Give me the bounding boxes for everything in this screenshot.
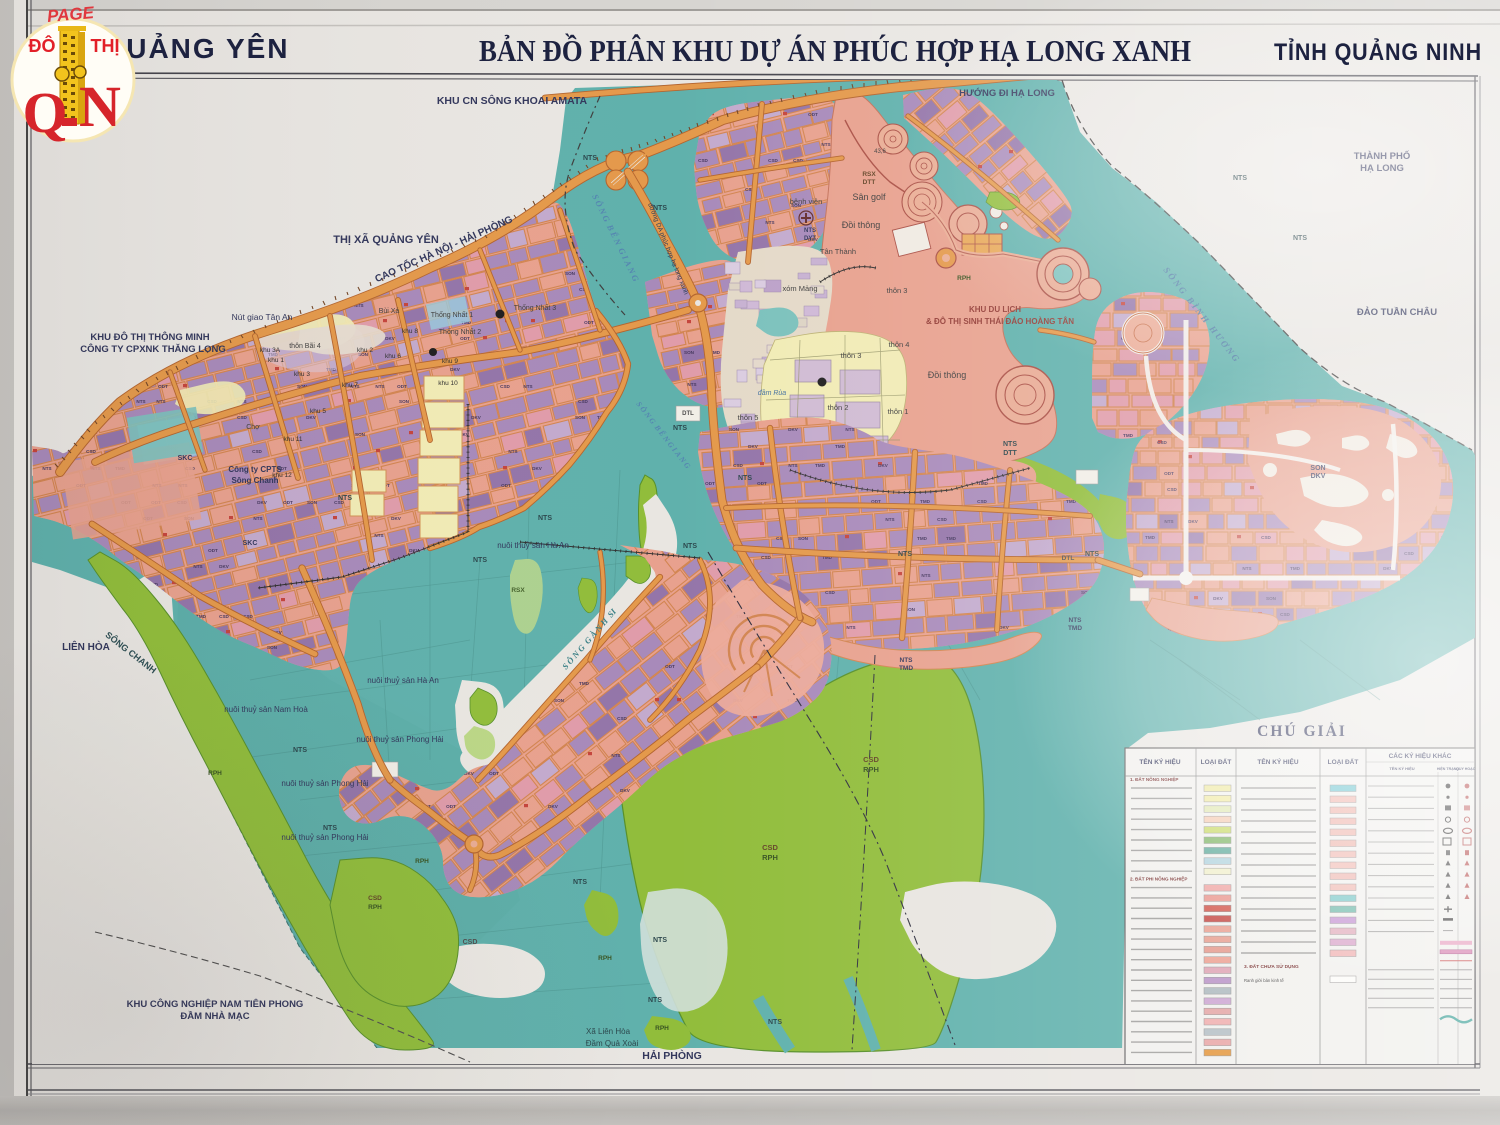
svg-text:Q: Q [22,80,67,145]
svg-text:THỊ: THỊ [91,36,120,56]
svg-text:BẢN ĐỒ PHÂN KHU DỰ ÁN PHÚC HỢP: BẢN ĐỒ PHÂN KHU DỰ ÁN PHÚC HỢP HẠ LONG X… [479,32,1191,68]
svg-text:N: N [79,74,121,139]
svg-text:TỈNH QUẢNG NINH: TỈNH QUẢNG NINH [1274,37,1482,66]
svg-text:ĐÔ: ĐÔ [29,35,56,56]
